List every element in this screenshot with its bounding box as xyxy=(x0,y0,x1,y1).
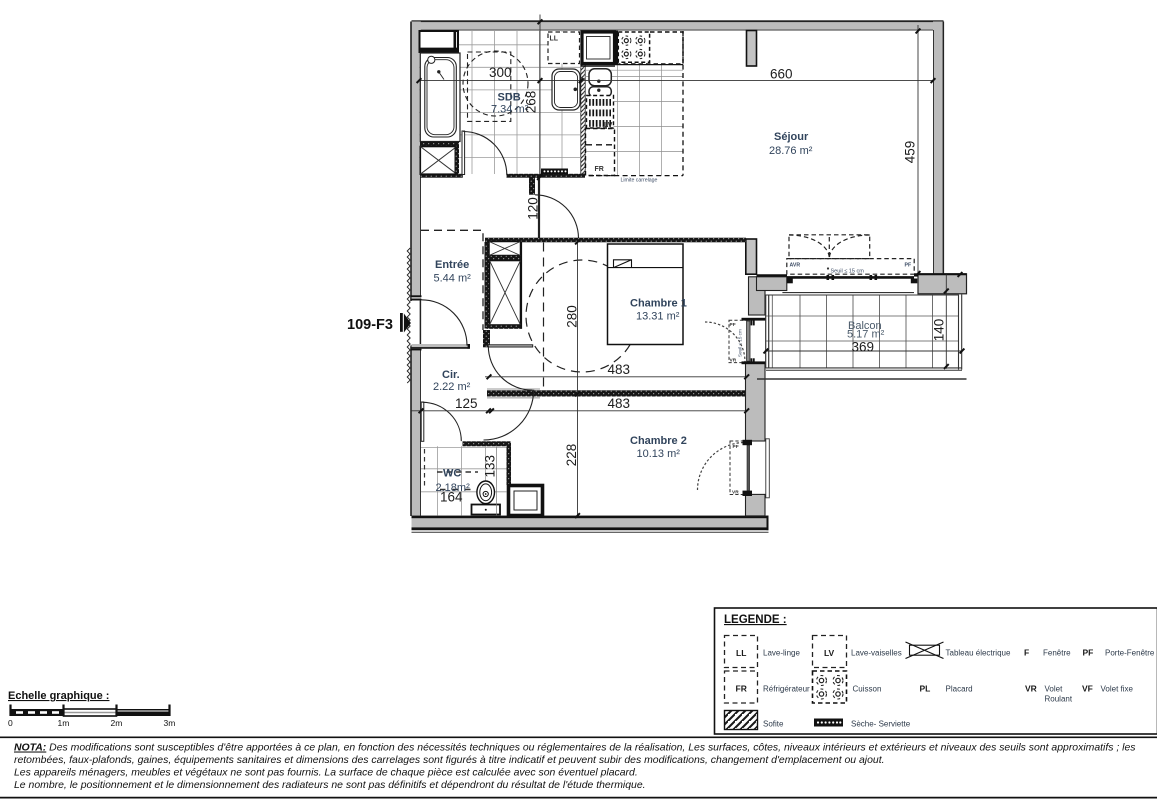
svg-text:NOTA: Des modifications sont s: NOTA: Des modifications sont susceptible… xyxy=(14,743,1136,754)
svg-text:Le nombre, le positionnement e: Le nombre, le positionnement et le dimen… xyxy=(14,780,646,791)
svg-text:Les appareils ménagers, meuble: Les appareils ménagers, meubles et végét… xyxy=(14,768,638,779)
svg-text:133: 133 xyxy=(483,455,498,478)
svg-text:WC: WC xyxy=(443,467,461,479)
svg-text:2m: 2m xyxy=(111,718,123,728)
svg-text:Placard: Placard xyxy=(946,685,973,694)
svg-text:AVR: AVR xyxy=(790,263,801,269)
svg-text:LL: LL xyxy=(550,36,559,43)
svg-text:Cuisson: Cuisson xyxy=(853,685,882,694)
svg-text:660: 660 xyxy=(770,67,793,82)
svg-text:13.31 m²: 13.31 m² xyxy=(636,311,680,323)
svg-text:F: F xyxy=(1024,648,1029,658)
svg-text:109-F3: 109-F3 xyxy=(347,317,393,333)
svg-text:120: 120 xyxy=(526,197,541,220)
svg-text:Chambre 2: Chambre 2 xyxy=(630,435,687,447)
svg-text:Echelle graphique :: Echelle graphique : xyxy=(8,690,109,702)
svg-text:268: 268 xyxy=(524,91,539,114)
svg-text:LL: LL xyxy=(736,648,746,658)
svg-text:VF: VF xyxy=(1082,684,1093,694)
svg-text:LV: LV xyxy=(824,648,835,658)
svg-text:10.13 m²: 10.13 m² xyxy=(637,448,681,460)
svg-text:Réfrigérateur: Réfrigérateur xyxy=(763,685,810,694)
svg-text:Séjour: Séjour xyxy=(774,131,809,143)
svg-text:Chambre 1: Chambre 1 xyxy=(630,298,687,310)
svg-text:VR: VR xyxy=(732,490,739,496)
svg-text:0: 0 xyxy=(8,718,13,728)
svg-text:280: 280 xyxy=(565,305,580,328)
svg-text:140: 140 xyxy=(932,319,947,342)
svg-text:Lave-linge: Lave-linge xyxy=(763,649,800,658)
svg-text:PF: PF xyxy=(1083,648,1094,658)
svg-text:Porte-Fenêtre: Porte-Fenêtre xyxy=(1105,649,1155,658)
svg-text:LEGENDE :: LEGENDE : xyxy=(724,614,787,626)
svg-text:Roulant: Roulant xyxy=(1045,695,1073,704)
svg-text:FR: FR xyxy=(595,166,604,173)
svg-text:228: 228 xyxy=(564,444,579,467)
svg-text:1m: 1m xyxy=(58,718,70,728)
svg-text:PL: PL xyxy=(920,684,931,694)
svg-text:PF: PF xyxy=(730,322,736,328)
svg-text:Tableau électrique: Tableau électrique xyxy=(946,649,1011,658)
svg-text:Sèche- Serviette: Sèche- Serviette xyxy=(851,720,911,729)
svg-text:483: 483 xyxy=(608,362,631,377)
svg-text:Limite carrelage: Limite carrelage xyxy=(621,178,658,184)
svg-text:SDB: SDB xyxy=(498,92,521,104)
svg-text:FR: FR xyxy=(736,684,747,694)
svg-text:28.76 m²: 28.76 m² xyxy=(769,145,813,157)
svg-text:Volet: Volet xyxy=(1045,685,1064,694)
svg-text:VR: VR xyxy=(730,358,737,364)
svg-text:300: 300 xyxy=(489,65,512,80)
svg-text:Seuil ≤ 15 cm: Seuil ≤ 15 cm xyxy=(831,269,865,275)
svg-text:Fenêtre: Fenêtre xyxy=(1043,649,1071,658)
svg-text:369: 369 xyxy=(852,340,875,355)
svg-text:3m: 3m xyxy=(164,718,176,728)
svg-text:2.22 m²: 2.22 m² xyxy=(433,381,471,393)
svg-text:Seuil ≤ 15 cm: Seuil ≤ 15 cm xyxy=(738,329,743,357)
svg-text:Sofite: Sofite xyxy=(763,720,784,729)
svg-text:Volet fixe: Volet fixe xyxy=(1101,685,1134,694)
svg-text:retombées, faux-plafonds, gain: retombées, faux-plafonds, gaines, équipe… xyxy=(14,755,885,766)
svg-text:PF: PF xyxy=(733,444,739,450)
svg-text:125: 125 xyxy=(455,396,478,411)
svg-text:5.44 m²: 5.44 m² xyxy=(434,273,472,285)
svg-text:483: 483 xyxy=(608,396,631,411)
svg-text:VR: VR xyxy=(1025,684,1037,694)
svg-text:Entrée: Entrée xyxy=(435,259,469,271)
svg-text:459: 459 xyxy=(903,141,918,164)
svg-text:164: 164 xyxy=(440,490,463,505)
svg-text:Cir.: Cir. xyxy=(442,369,460,381)
svg-text:PF: PF xyxy=(905,263,912,269)
svg-text:Lave-vaiselles: Lave-vaiselles xyxy=(851,649,902,658)
